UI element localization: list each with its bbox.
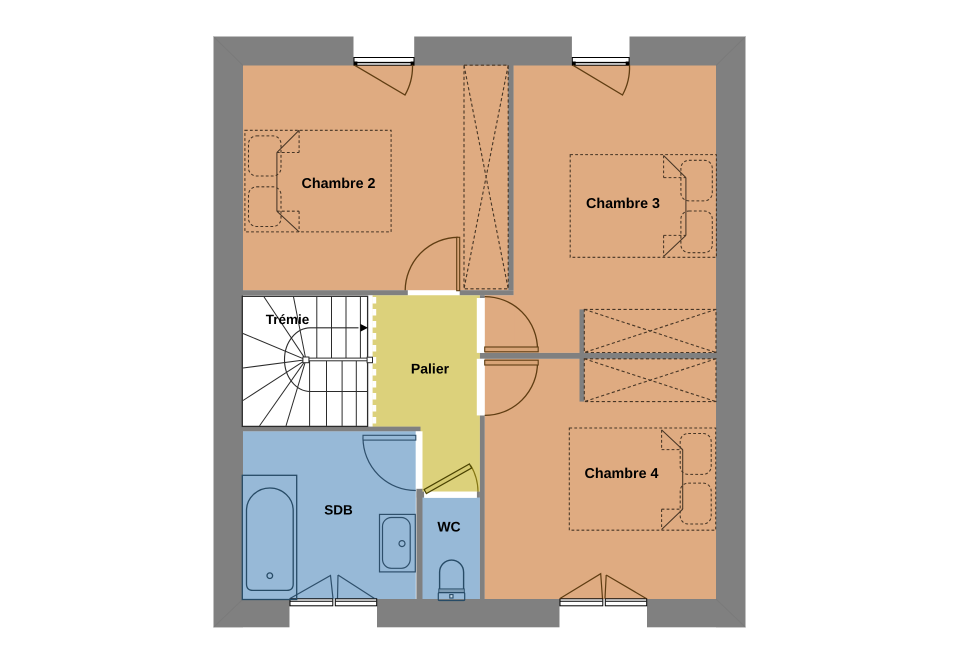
svg-text:Palier: Palier <box>411 360 450 376</box>
svg-text:Trémie: Trémie <box>266 312 310 327</box>
svg-text:Chambre 4: Chambre 4 <box>585 466 659 482</box>
svg-text:Chambre 2: Chambre 2 <box>302 176 376 192</box>
svg-text:SDB: SDB <box>324 502 353 517</box>
svg-text:Chambre 3: Chambre 3 <box>586 196 660 212</box>
svg-text:WC: WC <box>437 518 460 534</box>
